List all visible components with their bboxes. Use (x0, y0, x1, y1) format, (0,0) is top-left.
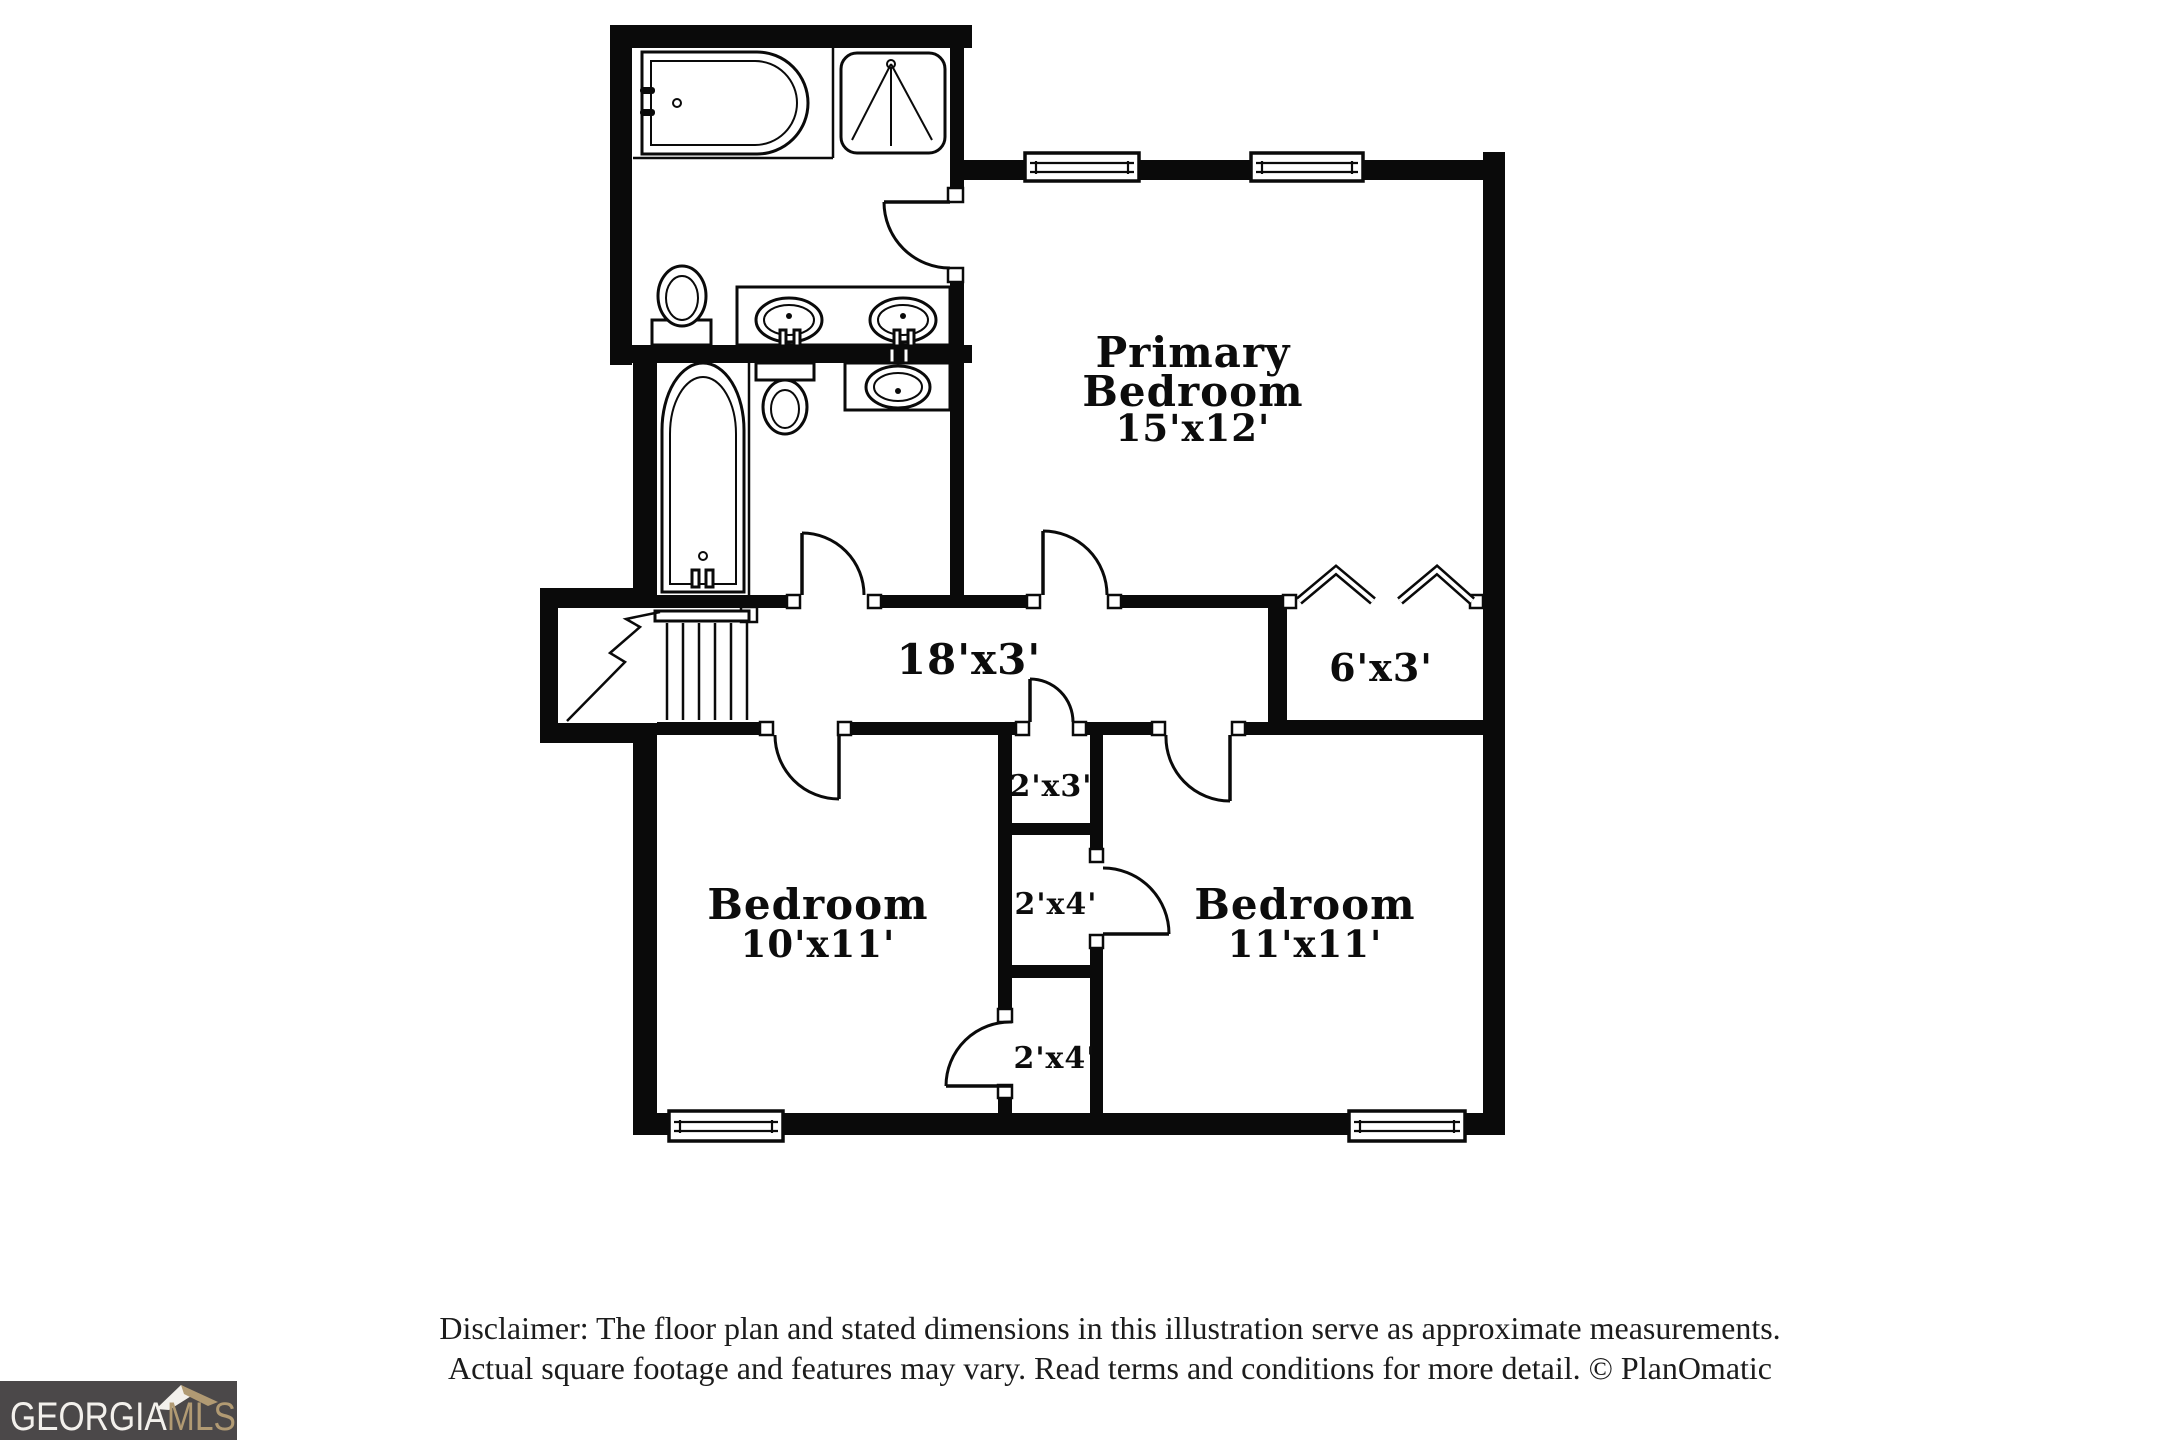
hallway-dimensions: 18'x3' (897, 635, 1041, 684)
door-swing-closet-2x4-mid (1103, 868, 1169, 934)
door-swing-left-bedroom (775, 735, 839, 799)
window-icon-primary-left (1025, 153, 1139, 181)
bathtub-icon (640, 52, 808, 154)
door-swing-primary-bathroom (884, 202, 950, 268)
shower-icon (841, 53, 945, 153)
double-vanity-icon (737, 287, 950, 346)
door-swing-closet-2x3 (1030, 679, 1073, 722)
door-swing-primary-bedroom (1043, 531, 1107, 595)
door-swing-hall-bathroom (802, 533, 864, 595)
closet-2x3-dimensions: 2'x3' (1009, 769, 1092, 804)
left-bedroom-dimensions: 10'x11' (741, 922, 896, 966)
stair-break-line (567, 612, 660, 721)
disclaimer-line-2: Actual square footage and features may v… (60, 1348, 2160, 1388)
disclaimer-text: Disclaimer: The floor plan and stated di… (60, 1308, 2160, 1388)
primary-closet-dimensions: 6'x3' (1329, 645, 1433, 690)
window-icon-primary-right (1251, 153, 1363, 181)
logo-georgia-text: GEORGIA (10, 1395, 167, 1439)
window-icon-left-bedroom (669, 1111, 783, 1141)
closet-2x4-mid-dimensions: 2'x4' (1014, 887, 1097, 922)
door-swing-closet-2x4-bottom (946, 1022, 1012, 1086)
door-swing-right-bedroom (1166, 735, 1230, 801)
primary-bedroom-dimensions: 15'x12' (1116, 406, 1271, 450)
toilet-icon (756, 363, 814, 434)
toilet-icon (652, 266, 711, 345)
logo-mls-text: MLS (167, 1395, 236, 1439)
floor-plan-drawing: Primary Bedroom 15'x12' 18'x3' 6'x3' Bed… (0, 0, 2160, 1440)
primary-bathroom-fixtures (633, 48, 950, 346)
bifold-door-icon (1299, 570, 1472, 601)
closet-2x4-bottom-dimensions: 2'x4' (1013, 1041, 1096, 1076)
right-bedroom-dimensions: 11'x11' (1228, 922, 1383, 966)
hall-bathroom-fixtures (662, 348, 950, 595)
room-labels: Primary Bedroom 15'x12' 18'x3' 6'x3' Bed… (707, 328, 1433, 1076)
bathtub-icon (662, 363, 744, 592)
window-icon-right-bedroom (1349, 1111, 1465, 1141)
disclaimer-line-1: Disclaimer: The floor plan and stated di… (60, 1308, 2160, 1348)
georgia-mls-logo: GEORGIAMLS (0, 1381, 237, 1440)
logo-text: GEORGIAMLS (10, 1397, 236, 1437)
floor-plan-page: Primary Bedroom 15'x12' 18'x3' 6'x3' Bed… (0, 0, 2160, 1440)
staircase-icon (567, 611, 749, 721)
